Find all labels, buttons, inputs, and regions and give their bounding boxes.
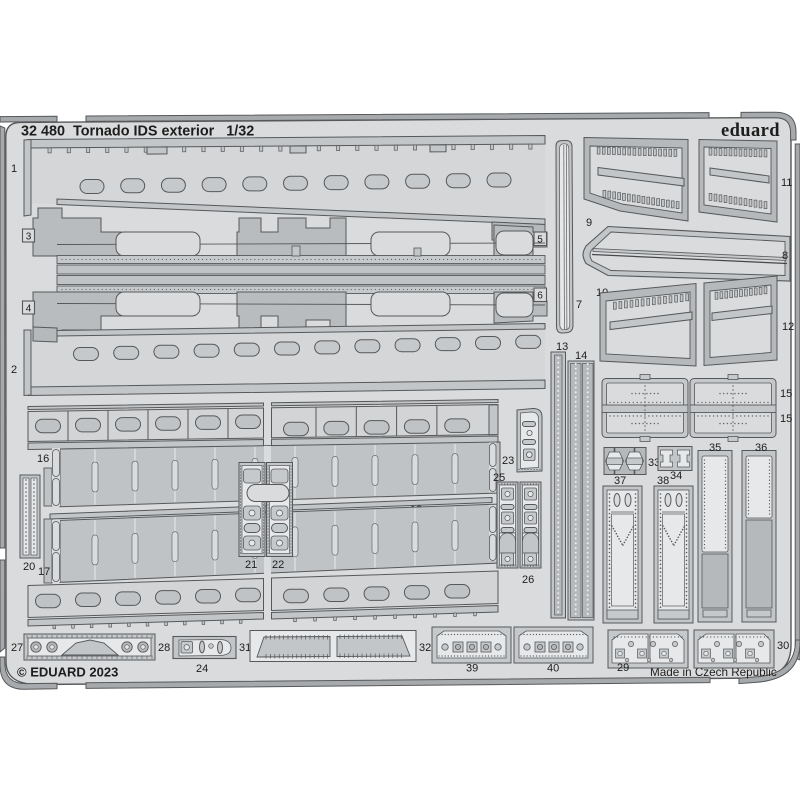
svg-text:24: 24 [196,663,208,675]
svg-text:9: 9 [586,217,592,229]
svg-text:8: 8 [782,250,788,262]
svg-text:21: 21 [245,559,257,571]
svg-text:2: 2 [11,364,17,376]
svg-text:29: 29 [617,662,629,674]
svg-text:12: 12 [782,321,794,333]
svg-text:27: 27 [11,642,23,654]
svg-text:14: 14 [575,350,587,362]
svg-text:3: 3 [26,232,32,243]
svg-text:36: 36 [755,442,767,454]
svg-text:40: 40 [547,663,559,675]
svg-text:32 480 Tornado IDS exterior: 32 480 Tornado IDS exterior 1/32 [21,124,254,140]
svg-text:23: 23 [502,455,514,467]
svg-text:6: 6 [537,291,543,302]
svg-text:20: 20 [23,561,35,573]
svg-text:35: 35 [709,442,721,454]
svg-text:© EDUARD 2023: © EDUARD 2023 [17,665,118,680]
svg-text:28: 28 [158,642,170,654]
svg-text:13: 13 [556,341,568,353]
svg-text:4: 4 [26,304,32,315]
svg-text:31: 31 [239,642,251,654]
svg-text:17: 17 [38,566,50,578]
svg-text:eduard: eduard [721,121,780,141]
svg-text:15: 15 [780,388,792,400]
svg-text:1: 1 [11,163,17,175]
svg-text:11: 11 [781,177,792,189]
svg-text:30: 30 [777,640,789,652]
svg-text:32: 32 [419,642,431,654]
svg-text:16: 16 [37,453,49,465]
svg-text:22: 22 [272,559,284,571]
svg-text:38: 38 [657,475,669,487]
svg-text:26: 26 [522,574,534,586]
svg-text:7: 7 [576,299,582,311]
svg-text:37: 37 [614,475,626,487]
svg-text:5: 5 [537,235,543,246]
svg-text:15: 15 [780,413,792,425]
svg-text:34: 34 [670,470,682,482]
svg-text:39: 39 [466,663,478,675]
